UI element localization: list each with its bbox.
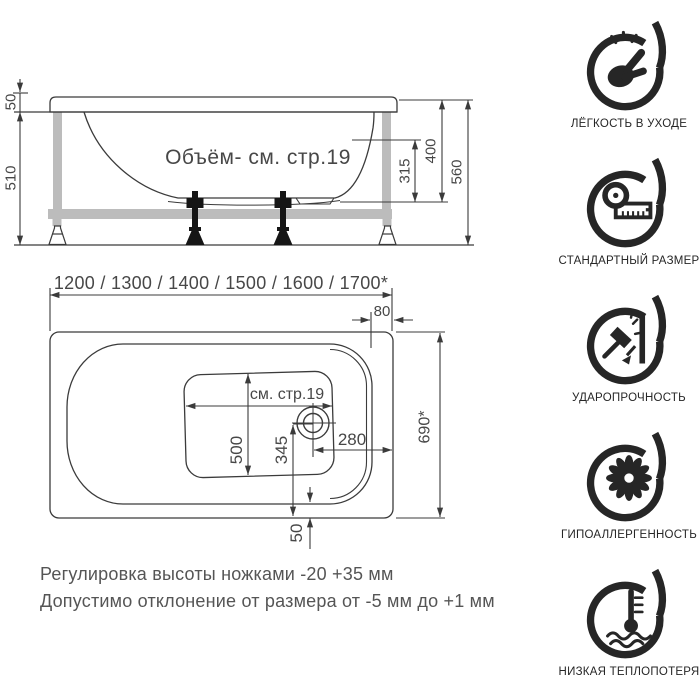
adjustable-feet-white: [49, 226, 396, 245]
bottom-note: см. стр.19: [250, 386, 324, 403]
feature-badges: ЛЁГКОСТЬ В УХОДЕ СТАНДАРТНЫЙ РАЗМЕР: [556, 14, 700, 699]
dim-rim-height: 50: [2, 94, 19, 111]
easy-care-icon: [578, 14, 680, 116]
footnotes: Регулировка высоты ножками -20 +35 мм До…: [40, 561, 495, 614]
dim-drain-to-edge: 280: [338, 430, 366, 449]
support-frame: [48, 112, 392, 226]
feature-low-heat-loss: НИЗКАЯ ТЕПЛОПОТЕРЯ: [556, 562, 700, 699]
dim-drain-offset: 345: [272, 436, 291, 464]
feature-label: ЛЁГКОСТЬ В УХОДЕ: [571, 118, 687, 130]
hypoallergenic-icon: [578, 425, 680, 527]
dim-rim-right: 80: [374, 303, 391, 320]
top-view-drawing: 1200 / 1300 / 1400 / 1500 / 1600 / 1700*…: [0, 268, 500, 558]
tub-outer-edge: [50, 332, 393, 518]
volume-note: Объём- см. стр.19: [165, 146, 351, 169]
dim-frame-height: 510: [2, 165, 19, 190]
tub-rim-profile: [50, 97, 397, 112]
low-heat-loss-icon: [578, 562, 680, 664]
tub-inner-rim-double: [330, 350, 367, 499]
dim-rim-bottom: 50: [287, 524, 306, 543]
dim-total-height: 560: [448, 159, 465, 184]
feature-label: СТАНДАРТНЫЙ РАЗМЕР: [559, 255, 700, 267]
bathtub-spec-sheet: 50 510 315 400 560 Объём- см. стр.19: [0, 0, 700, 700]
feature-standard-size: СТАНДАРТНЫЙ РАЗМЕР: [556, 151, 700, 288]
dim-tub-depth: 400: [422, 138, 439, 163]
feature-label: УДАРОПРОЧНОСТЬ: [572, 392, 686, 404]
impact-resistance-icon: [578, 288, 680, 390]
standard-size-icon: [578, 151, 680, 253]
feature-easy-care: ЛЁГКОСТЬ В УХОДЕ: [556, 14, 700, 151]
feature-impact-resistance: УДАРОПРОЧНОСТЬ: [556, 288, 700, 425]
footnote-tolerance: Допустимо отклонение от размера от -5 мм…: [40, 588, 495, 615]
feature-hypoallergenic: ГИПОАЛЛЕРГЕННОСТЬ: [556, 425, 700, 562]
tub-inner-rim: [67, 344, 372, 504]
feature-label: ГИПОАЛЛЕРГЕННОСТЬ: [561, 529, 697, 541]
footnote-legs: Регулировка высоты ножками -20 +35 мм: [40, 561, 495, 588]
top-view-geometry: [50, 288, 445, 549]
top-dimension-lines: [50, 295, 440, 549]
dim-bottom-width: 500: [227, 436, 246, 464]
side-view-drawing: 50 510 315 400 560 Объём- см. стр.19: [0, 0, 490, 260]
dim-tub-width: 690*: [417, 411, 434, 444]
dim-inner-depth: 315: [396, 158, 413, 183]
feature-label: НИЗКАЯ ТЕПЛОПОТЕРЯ: [559, 666, 700, 678]
dim-length-options: 1200 / 1300 / 1400 / 1500 / 1600 / 1700*: [54, 273, 388, 293]
